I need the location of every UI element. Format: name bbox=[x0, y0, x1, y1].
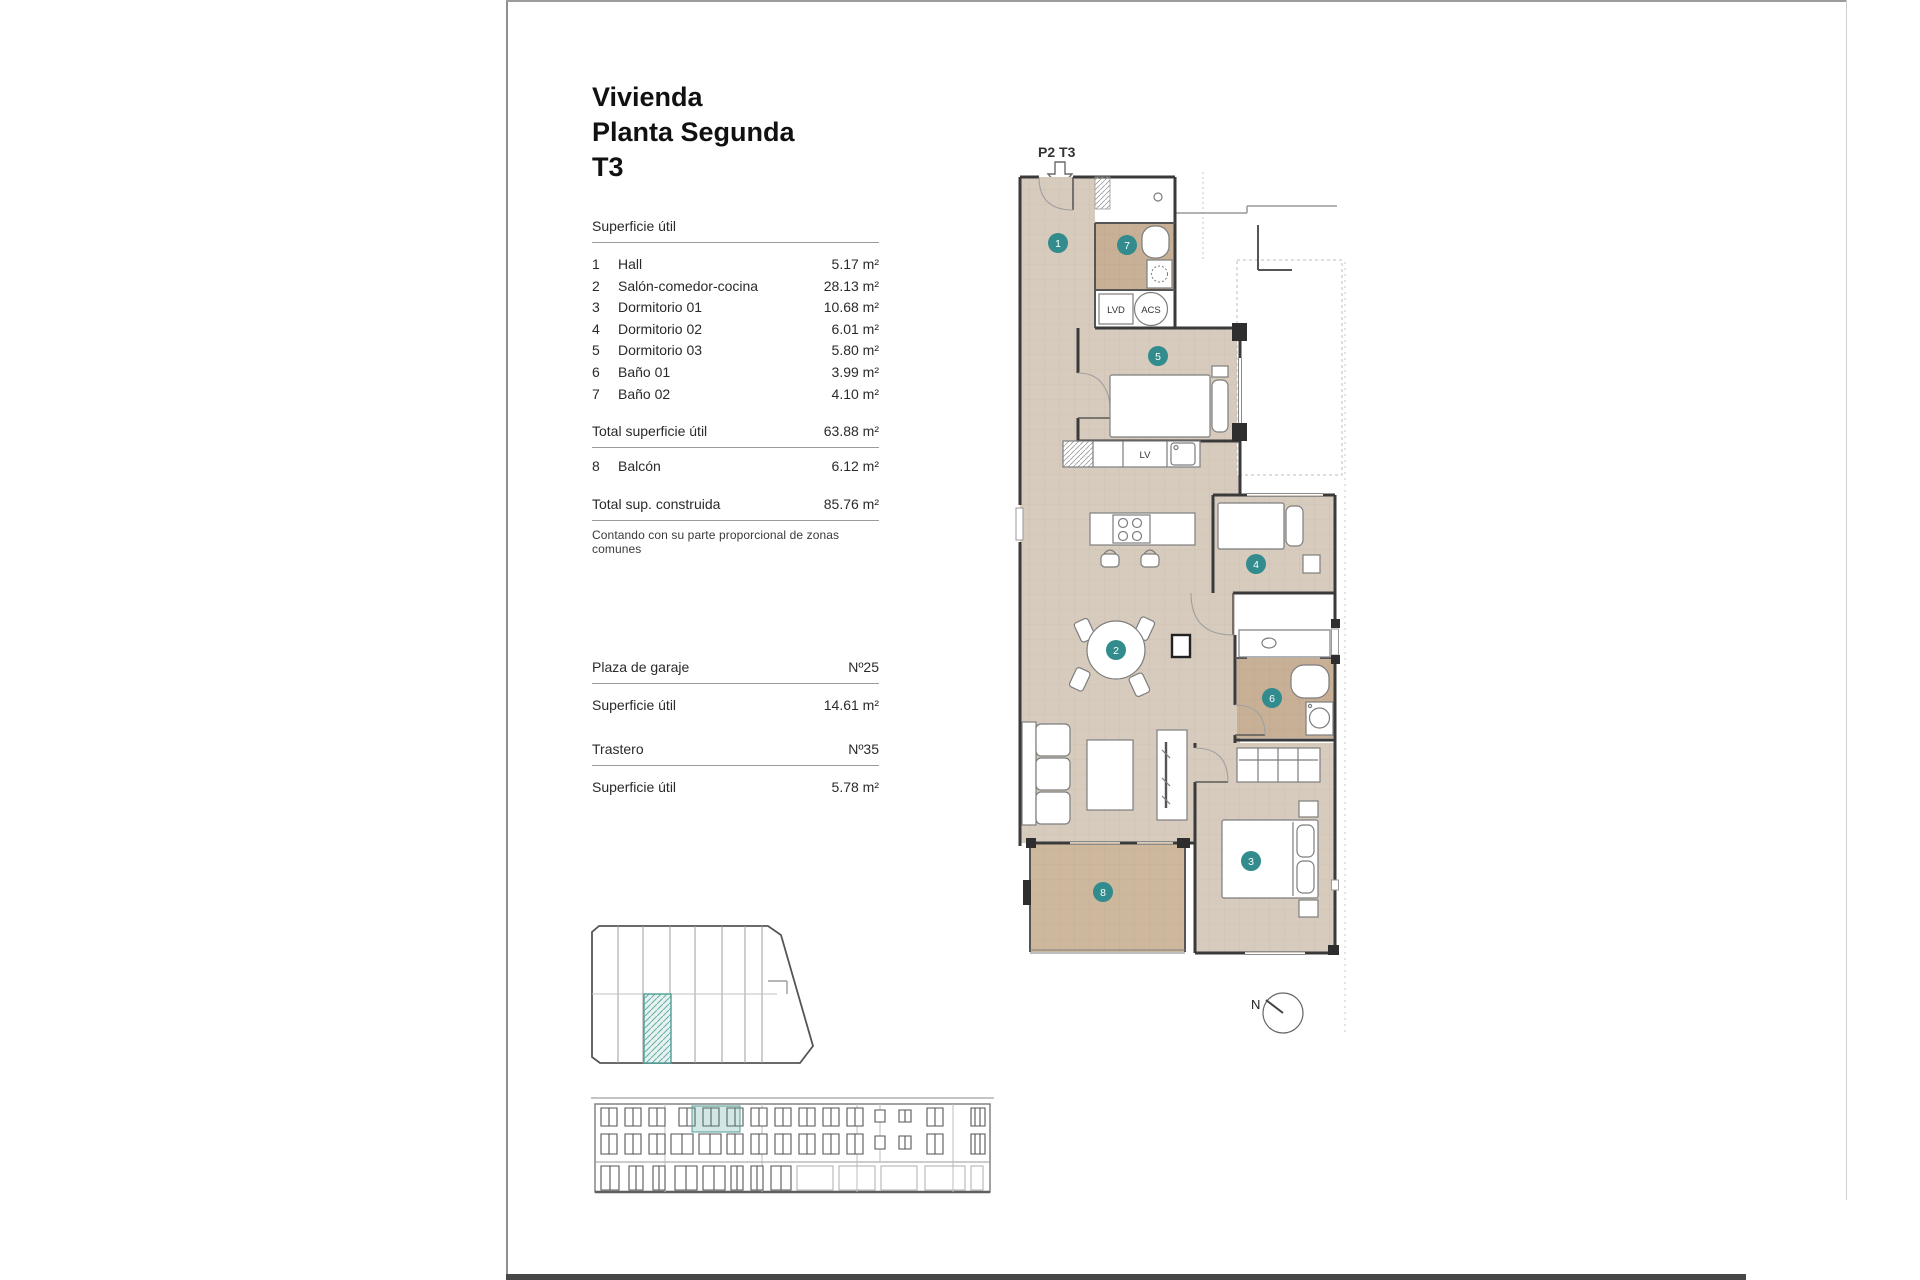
svg-text:5: 5 bbox=[1155, 351, 1161, 363]
badge-hall: 1 bbox=[1048, 233, 1068, 253]
title-line-1: Vivienda bbox=[592, 80, 795, 115]
single-bed bbox=[1110, 375, 1210, 437]
badge-balcony: 8 bbox=[1093, 882, 1113, 902]
badge-dorm3: 5 bbox=[1148, 346, 1168, 366]
tv-unit bbox=[1157, 730, 1187, 820]
areas-header: Superficie útil bbox=[592, 218, 879, 243]
badge-dorm1: 3 bbox=[1241, 851, 1261, 871]
dorm3-furniture bbox=[1110, 366, 1228, 437]
building-elevation bbox=[575, 1082, 1010, 1210]
pillow bbox=[1297, 861, 1314, 893]
badge-bath2: 7 bbox=[1117, 235, 1137, 255]
balcony-row: 8 Balcón 6.12 m² bbox=[592, 458, 879, 480]
compass-needle bbox=[1266, 1000, 1283, 1013]
bathtub-small bbox=[1142, 226, 1169, 258]
badge-living: 2 bbox=[1106, 640, 1126, 660]
area-row-bath1: 6 Baño 01 3.99 m² bbox=[592, 364, 879, 386]
ground-floor-windows bbox=[601, 1166, 791, 1190]
svg-text:8: 8 bbox=[1100, 887, 1106, 899]
storage-area-row: Superficie útil 5.78 m² bbox=[592, 779, 879, 795]
total-useful-row: Total superficie útil 63.88 m² bbox=[592, 423, 879, 448]
area-row-bath2: 7 Baño 02 4.10 m² bbox=[592, 386, 879, 408]
page-bottom-bar bbox=[506, 1274, 1746, 1280]
sofa-cushion bbox=[1036, 724, 1070, 756]
svg-text:6: 6 bbox=[1269, 693, 1275, 705]
area-row-salon: 2 Salón-comedor-cocina 28.13 m² bbox=[592, 278, 879, 300]
highlighted-unit-elevation bbox=[692, 1106, 740, 1132]
patio-dashed-outline bbox=[1237, 260, 1342, 475]
area-row-hall: 1 Hall 5.17 m² bbox=[592, 256, 879, 278]
area-row-dorm1: 3 Dormitorio 01 10.68 m² bbox=[592, 299, 879, 321]
storage-row: Trastero Nº35 bbox=[592, 741, 879, 766]
page-left-edge bbox=[506, 0, 508, 1280]
compass-label: N bbox=[1251, 997, 1260, 1012]
title-line-2: Planta Segunda bbox=[592, 115, 795, 150]
key-plan bbox=[585, 920, 815, 1066]
highlighted-unit bbox=[644, 994, 671, 1063]
garage-area-row: Superficie útil 14.61 m² bbox=[592, 697, 879, 713]
page-right-edge bbox=[1846, 0, 1847, 1200]
svg-text:3: 3 bbox=[1248, 856, 1254, 868]
unit-label: P2 T3 bbox=[1038, 144, 1076, 160]
garage-storage-panel: Plaza de garaje Nº25 Superficie útil 14.… bbox=[592, 659, 879, 795]
appliance bbox=[1063, 441, 1093, 467]
garage-row: Plaza de garaje Nº25 bbox=[592, 659, 879, 684]
svg-text:4: 4 bbox=[1253, 559, 1259, 571]
page-top-edge bbox=[506, 0, 1847, 2]
total-built-row: Total sup. construida 85.76 m² bbox=[592, 496, 879, 521]
shaft-hatch bbox=[1095, 177, 1110, 209]
kitchen: LV bbox=[1063, 441, 1200, 467]
acs-label: ACS bbox=[1141, 305, 1161, 316]
nightstand bbox=[1299, 900, 1318, 917]
svg-text:2: 2 bbox=[1113, 645, 1119, 657]
lvd-label: LVD bbox=[1107, 305, 1125, 316]
built-note: Contando con su parte proporcional de zo… bbox=[592, 528, 879, 556]
single-bed bbox=[1218, 503, 1284, 549]
column bbox=[1172, 635, 1190, 657]
pillow bbox=[1286, 506, 1303, 546]
floor-plan: P2 T3 bbox=[1015, 130, 1355, 1050]
sofa-back bbox=[1022, 722, 1036, 825]
sofa-cushion bbox=[1036, 792, 1070, 824]
north-compass: N bbox=[1251, 993, 1303, 1033]
bathtub bbox=[1291, 665, 1329, 698]
area-row-dorm2: 4 Dormitorio 02 6.01 m² bbox=[592, 321, 879, 343]
dishwasher-label: LV bbox=[1140, 450, 1152, 461]
coffee-table bbox=[1087, 740, 1133, 810]
page-title: Vivienda Planta Segunda T3 bbox=[592, 80, 795, 185]
kitchen-island bbox=[1090, 513, 1195, 545]
dorm1-furniture bbox=[1222, 748, 1320, 917]
badge-bath1: 6 bbox=[1262, 688, 1282, 708]
shelf bbox=[1212, 366, 1228, 377]
washbasin bbox=[1147, 260, 1172, 288]
svg-text:7: 7 bbox=[1124, 240, 1130, 252]
badge-dorm2: 4 bbox=[1246, 554, 1266, 574]
pillow bbox=[1212, 380, 1228, 432]
nightstand bbox=[1299, 801, 1318, 817]
nightstand bbox=[1303, 555, 1320, 573]
title-line-3: T3 bbox=[592, 150, 795, 185]
sofa-cushion bbox=[1036, 758, 1070, 790]
svg-text:1: 1 bbox=[1055, 238, 1061, 250]
areas-table: Superficie útil 1 Hall 5.17 m² 2 Salón-c… bbox=[592, 218, 879, 556]
pillow bbox=[1297, 825, 1314, 857]
area-row-dorm3: 5 Dormitorio 03 5.80 m² bbox=[592, 342, 879, 364]
